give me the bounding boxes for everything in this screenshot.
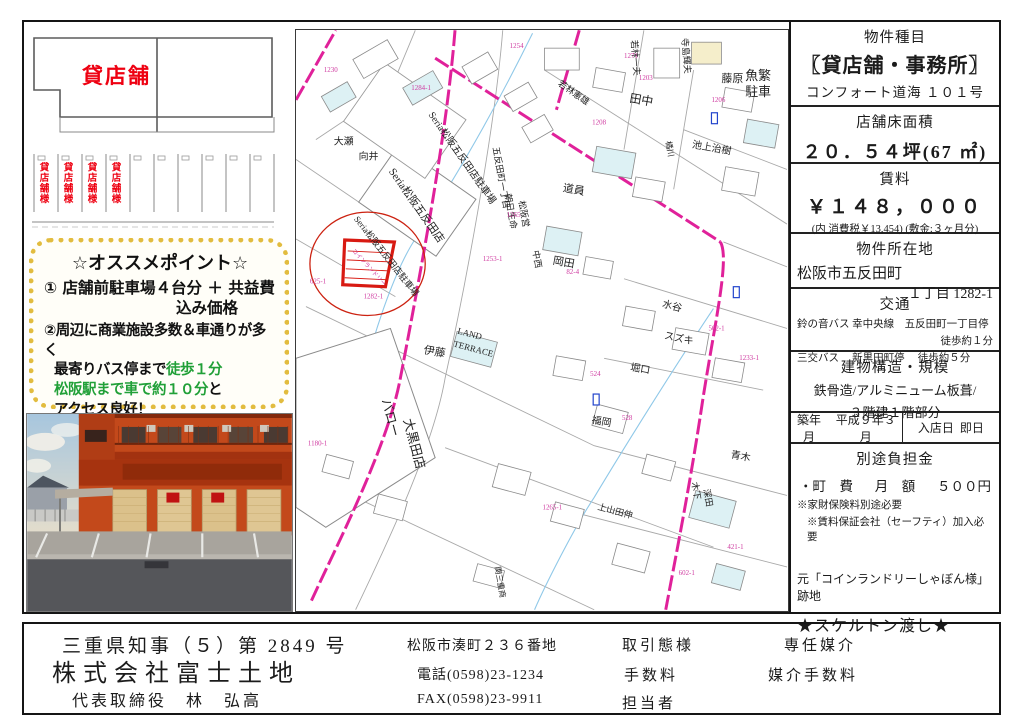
- floor-plan: 貸店舗 貸店舗様 貸店舗様 貸店舗様 貸店舗様: [24, 22, 295, 234]
- map-parcel-number: 1203: [639, 74, 653, 82]
- map-parcel-number: 602-1: [679, 569, 696, 577]
- section-rent: 賃料 ￥１４８，０００ (内 消費税￥13,454) (敷金:３ヶ月分): [791, 164, 999, 234]
- map-parcel-number: 562-1: [708, 324, 725, 332]
- map-building: [654, 48, 680, 78]
- section-floor-area: 店舗床面積 ２０．５４坪(67 ㎡): [791, 107, 999, 164]
- section-property-type: 物件種目 〖貸店舗・事務所〗 コンフォート道海 １０１号: [791, 22, 999, 107]
- section-location: 物件所在地 松阪市五反田町 １丁目 1282-1: [791, 234, 999, 289]
- map-label: 大瀬: [334, 135, 354, 148]
- staff-label: 担当者: [622, 692, 676, 713]
- fee-label: 手数料: [624, 664, 678, 685]
- representative-name: 代表取締役 林 弘高: [72, 687, 262, 711]
- floor-area-label: 店舗床面積: [797, 111, 993, 132]
- fee-value: 媒介手数料: [768, 664, 858, 685]
- property-type-label: 物件種目: [797, 26, 993, 47]
- building-photo: [26, 413, 293, 612]
- map-parcel-number: 1253-1: [483, 255, 503, 263]
- map-parcel-number: 421-1: [727, 543, 744, 551]
- company-name: 株式会社富士土地: [52, 653, 300, 688]
- points-line2: ②周辺に商業施設多数＆車通りが多く: [44, 322, 276, 361]
- structure-value-line1: 鉄骨造/アルミニューム板葺/: [797, 380, 993, 399]
- points-title: ☆オススメポイント☆: [44, 249, 276, 275]
- map-building: [743, 119, 778, 148]
- movein-cell: 入店日 即日: [903, 419, 999, 436]
- points-line1: ① 店舗前駐車場４台分 ＋ 共益費: [44, 278, 276, 298]
- location-value-line1: 松阪市五反田町: [797, 262, 993, 283]
- property-details-panel: 物件種目 〖貸店舗・事務所〗 コンフォート道海 １０１号 店舗床面積 ２０．５４…: [789, 22, 999, 612]
- top-section-frame: 貸店舗 貸店舗様 貸店舗様 貸店舗様 貸店舗様 ☆オススメポイント☆ ① 店舗前…: [22, 20, 1001, 614]
- parking-stall-label: 貸店舗様: [86, 162, 96, 204]
- building-photo-drawing: [27, 414, 292, 611]
- map-parcel-number: 524: [590, 370, 601, 378]
- company-address: 松阪市湊町２３６番地: [407, 635, 557, 655]
- points-line1b: 込み価格: [44, 298, 276, 318]
- movein-label: 入店日: [918, 419, 954, 436]
- extra-frequency: 月 額: [875, 475, 916, 495]
- transport-line2: 徒歩約１分: [797, 333, 993, 348]
- location-label: 物件所在地: [797, 238, 993, 259]
- map-parcel-number: 82-4: [566, 268, 579, 276]
- property-flyer: { "floor_plan": { "shop_label": "貸店舗", "…: [0, 0, 1024, 722]
- map-building: [544, 48, 579, 70]
- map-parcel-number: 1206: [711, 96, 725, 104]
- built-value: 平成９年３月: [830, 411, 902, 445]
- parking-stall-label: 貸店舗様: [38, 162, 48, 204]
- rent-label: 賃料: [797, 168, 993, 189]
- built-cell: 築年月 平成９年３月: [791, 413, 903, 442]
- map-parcel-number: 625-1: [310, 278, 327, 286]
- floor-plan-shop-label: 貸店舗: [82, 60, 192, 90]
- points-line3: 最寄りバス停まで徒歩１分: [44, 361, 276, 381]
- map-label: 向井: [359, 149, 379, 162]
- section-built-movein: 築年月 平成９年３月 入店日 即日: [791, 413, 999, 444]
- map-label: 魚繁: [745, 68, 771, 83]
- map-parcel-number: 1208: [592, 119, 606, 127]
- points-line3-black: 最寄りバス停まで: [54, 362, 166, 378]
- parking-stall-label: 貸店舗様: [62, 162, 72, 204]
- map-svg: Seria松阪五反田店駐車場Seria松阪五反田店Seria松阪五反田店駐車場五…: [296, 30, 787, 610]
- map-parcel-number: 1265: [507, 211, 521, 219]
- extra-item: ・町 費: [799, 475, 853, 495]
- extra-charges-row: ・町 費 月 額 ５００円: [797, 475, 993, 495]
- map-parcel-number: 1271: [624, 52, 638, 60]
- rent-note: (内 消費税￥13,454) (敷金:３ヶ月分): [797, 221, 993, 236]
- shutter-sign: [211, 493, 224, 503]
- points-line4: 松阪駅まで車で約１０分と: [44, 381, 276, 401]
- map-parcel-number: 1180-1: [308, 440, 328, 448]
- recommended-points-box: ☆オススメポイント☆ ① 店舗前駐車場４台分 ＋ 共益費 込み価格 ②周辺に商業…: [29, 238, 289, 409]
- property-type-value: 〖貸店舗・事務所〗: [797, 49, 993, 78]
- extra-amount: ５００円: [937, 475, 991, 495]
- points-line4-green: 松阪駅まで車で約１０分: [54, 382, 208, 398]
- built-label: 築年月: [791, 411, 827, 445]
- map-label: 藤原: [721, 72, 743, 85]
- property-name: コンフォート道海 １０１号: [797, 81, 993, 101]
- map-parcel-number: 1265-1: [542, 503, 562, 511]
- shutter-sign: [166, 493, 179, 503]
- map-building: [692, 42, 722, 64]
- floor-area-value: ２０．５４坪(67 ㎡): [797, 138, 993, 164]
- points-line4-black: と: [208, 382, 222, 398]
- map-parcel-number: 1284-1: [411, 84, 431, 92]
- company-fax: FAX(0598)23-9911: [417, 692, 543, 708]
- former-tenant-note: 元「コインランドリーしゃぼん様」跡地: [797, 570, 993, 604]
- map-parcel-number: 1254: [510, 42, 524, 50]
- map-parcel-number: 1282-1: [364, 293, 384, 301]
- map-parcel-number: 528: [622, 414, 633, 422]
- company-phone: 電話(0598)23-1234: [417, 664, 544, 684]
- deal-type-value: 専任媒介: [784, 634, 856, 655]
- points-line3-green: 徒歩１分: [166, 362, 222, 378]
- extra-charges-label: 別途負担金: [797, 448, 993, 469]
- guarantee-note: ※賃料保証会社（セーフティ）加入必要: [797, 514, 993, 544]
- map-label: 駐車: [745, 84, 771, 99]
- rent-value: ￥１４８，０００: [797, 192, 993, 219]
- location-map: Seria松阪五反田店駐車場Seria松阪五反田店Seria松阪五反田店駐車場五…: [295, 29, 789, 612]
- transport-line1: 鈴の音バス 幸中央線 五反田町一丁目停: [797, 316, 993, 331]
- section-extra-charges: 別途負担金 ・町 費 月 額 ５００円 ※家財保険料別途必要 ※賃料保証会社（セ…: [791, 444, 999, 612]
- map-parcel-number: 1230: [324, 66, 338, 74]
- parking-stall-label: 貸店舗様: [110, 162, 120, 204]
- movein-value: 即日: [960, 419, 984, 436]
- insurance-note: ※家財保険料別途必要: [797, 497, 993, 512]
- company-footer: 三重県知事（５）第 2849 号 株式会社富士土地 代表取締役 林 弘高 松阪市…: [22, 622, 1001, 715]
- deal-type-label: 取引態様: [622, 634, 694, 655]
- map-parcel-number: 1233-1: [739, 354, 759, 362]
